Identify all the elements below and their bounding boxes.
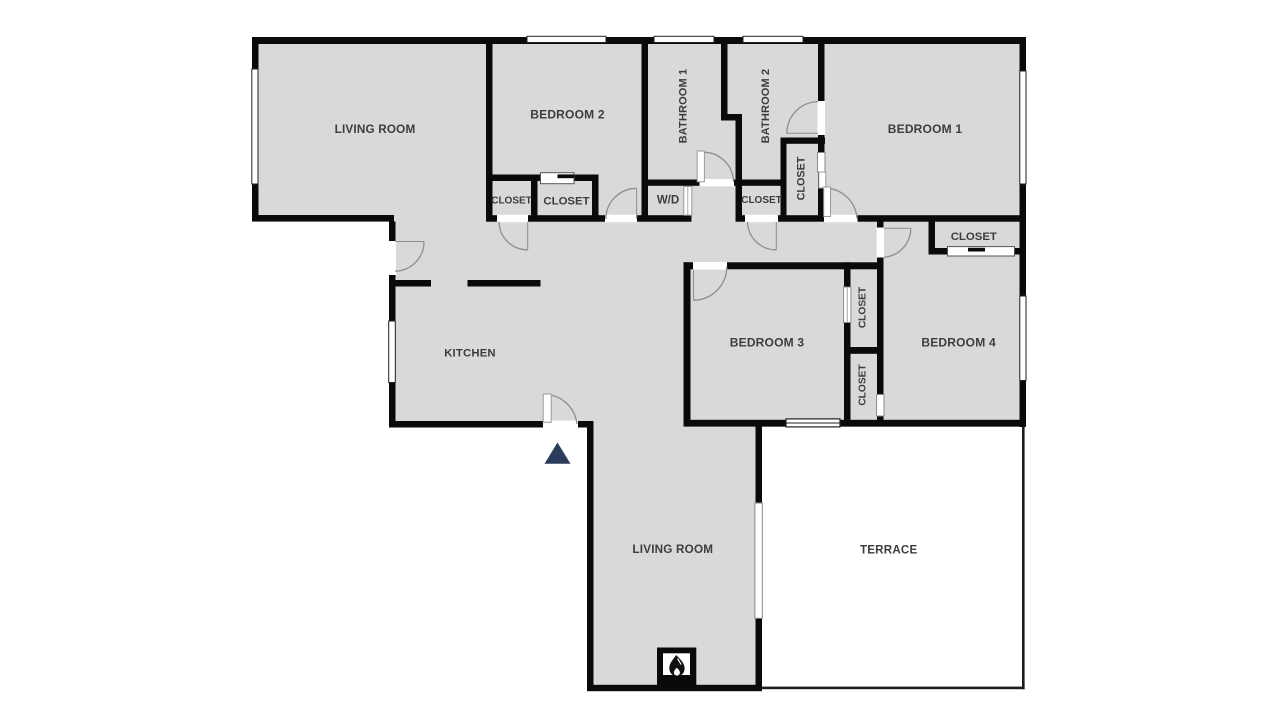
svg-text:CLOSET: CLOSET bbox=[491, 196, 532, 207]
svg-text:TERRACE: TERRACE bbox=[860, 544, 918, 557]
svg-text:W/D: W/D bbox=[657, 195, 679, 207]
svg-text:CLOSET: CLOSET bbox=[857, 364, 868, 406]
svg-text:CLOSET: CLOSET bbox=[858, 286, 869, 328]
svg-text:BEDROOM 3: BEDROOM 3 bbox=[730, 335, 805, 349]
svg-text:BEDROOM 4: BEDROOM 4 bbox=[921, 335, 996, 349]
svg-text:CLOSET: CLOSET bbox=[795, 156, 807, 200]
svg-text:CLOSET: CLOSET bbox=[951, 231, 997, 243]
svg-text:BATHROOM 1: BATHROOM 1 bbox=[678, 69, 690, 144]
svg-text:CLOSET: CLOSET bbox=[741, 195, 782, 206]
svg-text:BEDROOM 2: BEDROOM 2 bbox=[530, 107, 605, 121]
svg-text:KITCHEN: KITCHEN bbox=[444, 348, 496, 360]
svg-text:CLOSET: CLOSET bbox=[543, 196, 589, 208]
svg-text:BEDROOM 1: BEDROOM 1 bbox=[888, 122, 963, 136]
svg-text:LIVING ROOM: LIVING ROOM bbox=[632, 543, 713, 556]
svg-text:BATHROOM 2: BATHROOM 2 bbox=[760, 69, 772, 144]
svg-text:LIVING ROOM: LIVING ROOM bbox=[335, 123, 416, 136]
